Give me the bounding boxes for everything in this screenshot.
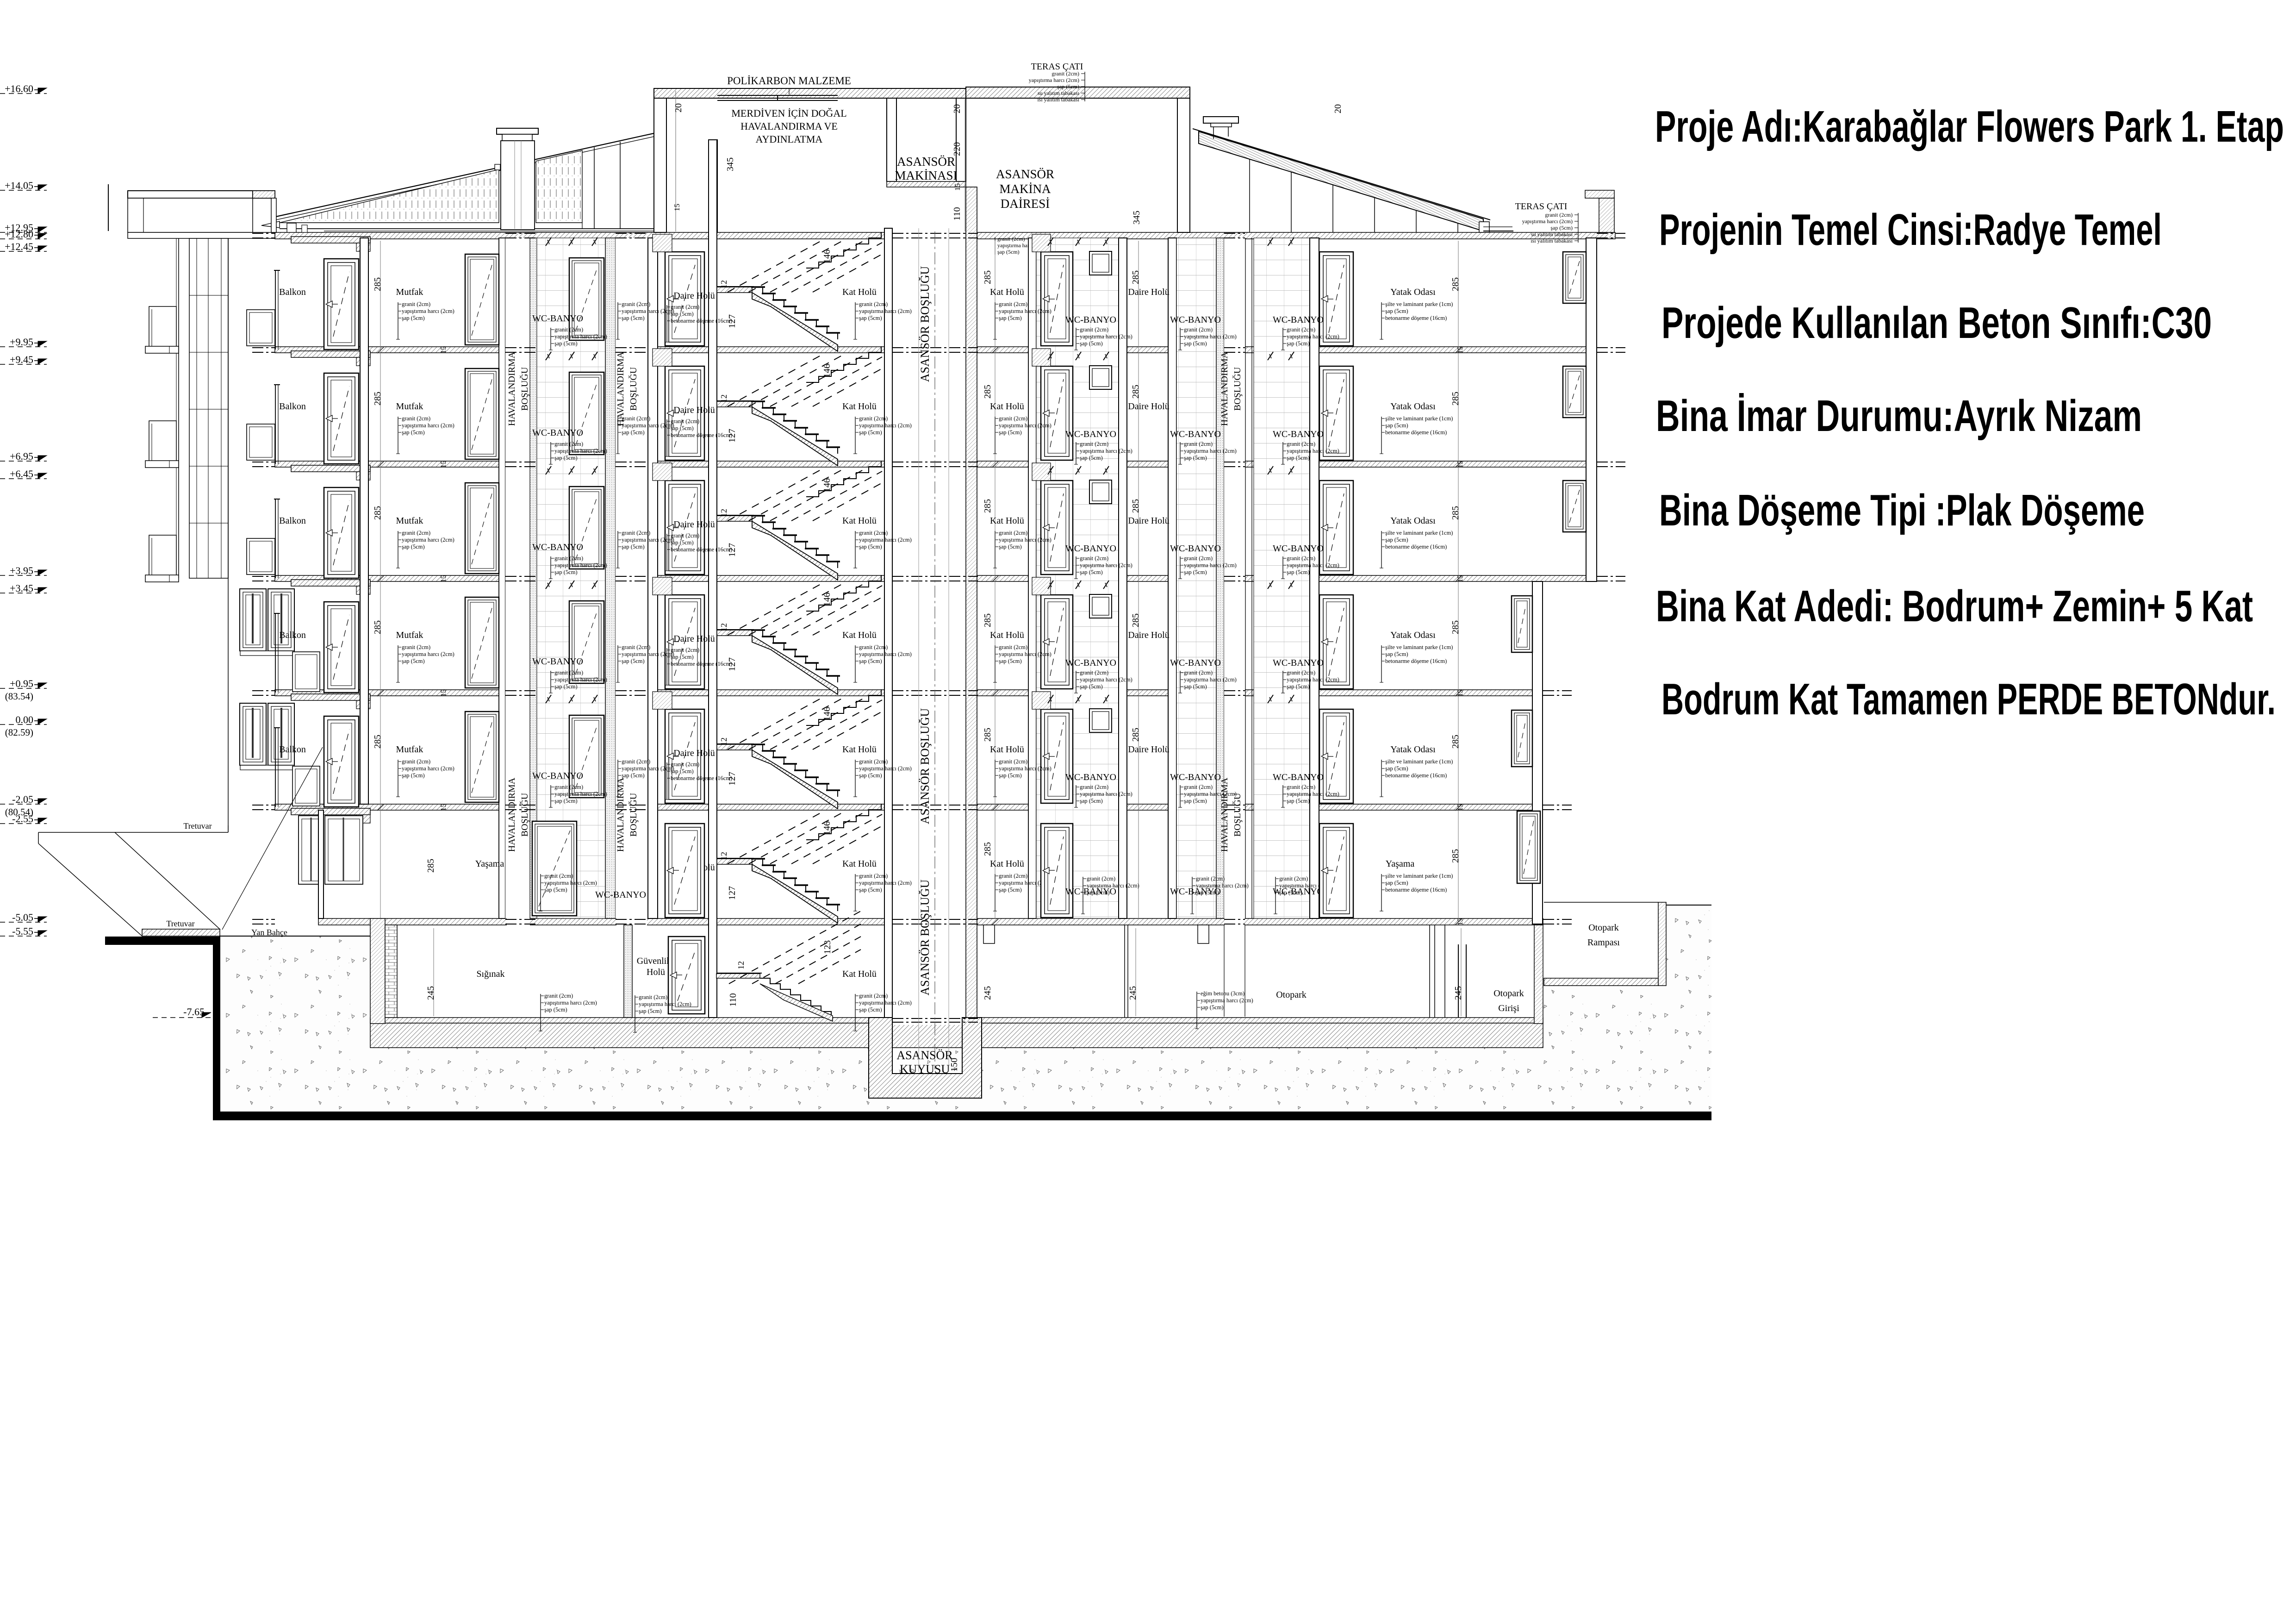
svg-text:Tretuvar: Tretuvar <box>183 821 212 831</box>
svg-text:şilte ve laminant parke (1cm): şilte ve laminant parke (1cm) <box>1385 644 1453 650</box>
svg-text:granit (2cm): granit (2cm) <box>1196 875 1225 882</box>
svg-text:285: 285 <box>983 499 993 513</box>
svg-text:su yalıtım tabakası: su yalıtım tabakası <box>1038 90 1080 96</box>
svg-text:şap (5cm): şap (5cm) <box>859 315 882 321</box>
svg-text:ASANSÖR: ASANSÖR <box>996 167 1054 181</box>
svg-text:granit (2cm): granit (2cm) <box>1052 70 1079 77</box>
svg-text:WC-BANYO: WC-BANYO <box>595 890 646 900</box>
svg-text:granit (2cm): granit (2cm) <box>1184 669 1213 676</box>
svg-text:granit (2cm): granit (2cm) <box>999 530 1027 536</box>
svg-text:yapıştırma harcı (2cm): yapıştırma harcı (2cm) <box>622 308 674 314</box>
svg-text:127: 127 <box>727 543 737 557</box>
svg-text:granit (2cm): granit (2cm) <box>859 993 888 999</box>
svg-text:granit (2cm): granit (2cm) <box>402 530 430 536</box>
svg-text:WC-BANYO: WC-BANYO <box>1170 772 1221 782</box>
svg-text:granit (2cm): granit (2cm) <box>1279 875 1308 882</box>
svg-text:Otopark: Otopark <box>1276 990 1307 1000</box>
svg-text:MERDİVEN İÇİN DOĞAL: MERDİVEN İÇİN DOĞAL <box>731 107 846 119</box>
svg-text:şap (5cm): şap (5cm) <box>622 543 645 550</box>
svg-text:BOŞLUĞU: BOŞLUĞU <box>519 793 530 837</box>
svg-text:şap (5cm): şap (5cm) <box>1184 340 1207 347</box>
svg-text:Otopark: Otopark <box>1493 988 1524 999</box>
svg-text:+9.45: +9.45 <box>10 354 33 365</box>
svg-text:285: 285 <box>373 506 383 520</box>
svg-text:granit (2cm): granit (2cm) <box>639 994 667 1000</box>
svg-text:Kat Holü: Kat Holü <box>990 401 1024 412</box>
svg-text:245: 245 <box>1128 986 1138 1000</box>
svg-text:betonarme döşeme (16cm): betonarme döşeme (16cm) <box>671 661 732 667</box>
svg-text:110: 110 <box>952 207 962 220</box>
svg-text:ASANSÖR BOŞLUĞU: ASANSÖR BOŞLUĞU <box>918 708 932 824</box>
svg-text:yapıştırma harcı (2cm): yapıştırma harcı (2cm) <box>622 765 674 772</box>
svg-text:Holü: Holü <box>647 967 665 977</box>
svg-text:şilte ve laminant parke (1cm): şilte ve laminant parke (1cm) <box>1385 758 1453 765</box>
svg-text:WC-BANYO: WC-BANYO <box>1170 315 1221 325</box>
svg-text:betonarme döşeme (16cm): betonarme döşeme (16cm) <box>1385 315 1447 321</box>
svg-text:0.00: 0.00 <box>16 714 34 725</box>
svg-text:220: 220 <box>952 142 962 156</box>
svg-text:yapıştırma harcı (2cm): yapıştırma harcı (2cm) <box>402 422 454 429</box>
svg-text:245: 245 <box>426 986 436 1000</box>
svg-text:yapıştırma harcı (2cm): yapıştırma harcı (2cm) <box>554 676 607 683</box>
svg-text:BOŞLUĞU: BOŞLUĞU <box>1232 367 1243 411</box>
svg-text:şap (5cm): şap (5cm) <box>402 658 425 664</box>
svg-text:şap (5cm): şap (5cm) <box>671 654 694 660</box>
svg-text:127: 127 <box>727 429 737 443</box>
svg-text:Proje Adı:Karabağlar Flowers P: Proje Adı:Karabağlar Flowers Park 1. Eta… <box>1655 102 2284 151</box>
svg-text:şap (5cm): şap (5cm) <box>859 543 882 550</box>
svg-text:şap (5cm): şap (5cm) <box>999 887 1022 893</box>
svg-text:Kat Holü: Kat Holü <box>842 287 877 297</box>
svg-text:granit (2cm): granit (2cm) <box>1080 555 1108 562</box>
svg-text:şap (5cm): şap (5cm) <box>671 311 694 317</box>
svg-text:Yatak Odası: Yatak Odası <box>1390 630 1436 640</box>
svg-text:Balkon: Balkon <box>279 401 306 412</box>
svg-text:Yaşama: Yaşama <box>475 859 504 869</box>
svg-text:Kat Holü: Kat Holü <box>842 516 877 526</box>
svg-text:yapıştırma harcı (2cm): yapıştırma harcı (2cm) <box>859 422 912 429</box>
svg-text:yapıştırma harcı (2cm): yapıştırma harcı (2cm) <box>999 308 1052 314</box>
svg-text:WC-BANYO: WC-BANYO <box>532 313 583 324</box>
svg-text:granit (2cm): granit (2cm) <box>1184 555 1213 562</box>
svg-text:granit (2cm): granit (2cm) <box>622 530 650 536</box>
svg-text:WC-BANYO: WC-BANYO <box>1065 429 1116 439</box>
svg-text:granit (2cm): granit (2cm) <box>671 304 699 310</box>
svg-text:yapıştırma harcı (2cm): yapıştırma harcı (2cm) <box>859 651 912 657</box>
svg-text:15: 15 <box>1456 804 1464 811</box>
svg-text:285: 285 <box>373 735 383 749</box>
svg-text:granit (2cm): granit (2cm) <box>859 644 888 650</box>
svg-text:285: 285 <box>373 392 383 406</box>
svg-text:şap (5cm): şap (5cm) <box>1080 683 1103 690</box>
svg-text:+12.45: +12.45 <box>5 241 33 252</box>
svg-text:şilte ve laminant parke (1cm): şilte ve laminant parke (1cm) <box>1385 301 1453 307</box>
svg-text:Daire Holü: Daire Holü <box>1128 744 1169 755</box>
svg-text:285: 285 <box>1450 620 1461 634</box>
svg-text:granit (2cm): granit (2cm) <box>671 647 699 653</box>
svg-text:granit (2cm): granit (2cm) <box>554 441 583 447</box>
svg-text:Yatak Odası: Yatak Odası <box>1390 401 1436 412</box>
svg-text:-7.65: -7.65 <box>183 1006 205 1018</box>
svg-text:yapıştırma harcı (2cm): yapıştırma harcı (2cm) <box>554 448 607 454</box>
svg-text:15: 15 <box>1456 575 1464 582</box>
svg-text:şap (5cm): şap (5cm) <box>999 543 1022 550</box>
svg-text:Yan Bahçe: Yan Bahçe <box>251 928 287 937</box>
svg-text:285: 285 <box>983 842 993 856</box>
svg-text:şap (5cm): şap (5cm) <box>999 772 1022 779</box>
svg-text:Otopark: Otopark <box>1588 923 1619 933</box>
svg-text:granit (2cm): granit (2cm) <box>1287 441 1315 447</box>
svg-text:127: 127 <box>727 657 737 671</box>
svg-text:betonarme döşeme (16cm): betonarme döşeme (16cm) <box>671 318 732 324</box>
svg-text:şap (5cm): şap (5cm) <box>1385 651 1408 657</box>
svg-text:şap (5cm): şap (5cm) <box>859 658 882 664</box>
svg-text:15: 15 <box>1456 918 1464 925</box>
svg-text:127: 127 <box>727 772 737 786</box>
svg-text:şap (5cm): şap (5cm) <box>859 887 882 893</box>
svg-text:şap (5cm): şap (5cm) <box>639 1008 662 1014</box>
svg-text:granit (2cm): granit (2cm) <box>622 758 650 765</box>
svg-text:yapıştırma harcı (2cm): yapıştırma harcı (2cm) <box>554 562 607 568</box>
svg-text:granit (2cm): granit (2cm) <box>859 530 888 536</box>
svg-text:granit (2cm): granit (2cm) <box>1080 441 1108 447</box>
svg-text:granit (2cm): granit (2cm) <box>1184 784 1213 790</box>
svg-text:granit (2cm): granit (2cm) <box>999 873 1027 879</box>
svg-text:şap (5cm): şap (5cm) <box>554 798 578 804</box>
svg-text:şap (5cm): şap (5cm) <box>544 887 567 893</box>
svg-text:Kat Holü: Kat Holü <box>842 859 877 869</box>
svg-text:285: 285 <box>983 613 993 627</box>
svg-text:150: 150 <box>949 1058 959 1072</box>
svg-text:şap (5cm): şap (5cm) <box>671 768 694 775</box>
svg-text:Tretuvar: Tretuvar <box>166 919 194 928</box>
svg-text:WC-BANYO: WC-BANYO <box>1273 315 1324 325</box>
svg-text:şap (5cm): şap (5cm) <box>859 1006 882 1013</box>
svg-text:285: 285 <box>983 270 993 284</box>
svg-text:betonarme döşeme (16cm): betonarme döşeme (16cm) <box>1385 887 1447 893</box>
svg-text:WC-BANYO: WC-BANYO <box>1273 429 1324 439</box>
svg-text:+9.95: +9.95 <box>10 336 33 348</box>
svg-text:ASANSÖR BOŞLUĞU: ASANSÖR BOŞLUĞU <box>918 266 932 382</box>
svg-text:şap (5cm): şap (5cm) <box>544 1006 567 1013</box>
svg-text:HAVALANDIRMA VE: HAVALANDIRMA VE <box>740 120 838 132</box>
svg-text:Kat Holü: Kat Holü <box>990 744 1024 755</box>
svg-text:yapıştırma harcı (2cm): yapıştırma harcı (2cm) <box>1080 448 1132 454</box>
svg-text:285: 285 <box>373 620 383 634</box>
svg-text:Balkon: Balkon <box>279 516 306 526</box>
svg-text:su yalıtım tabakası: su yalıtım tabakası <box>1531 231 1573 237</box>
svg-text:eğim betonu (3cm): eğim betonu (3cm) <box>1201 990 1244 997</box>
svg-text:yapıştırma harcı (2cm): yapıştırma harcı (2cm) <box>1087 882 1139 889</box>
svg-text:yapıştırma harcı (2cm): yapıştırma harcı (2cm) <box>1287 791 1339 797</box>
svg-text:şap (5cm): şap (5cm) <box>859 772 882 779</box>
svg-text:Yatak Odası: Yatak Odası <box>1390 287 1436 297</box>
svg-text:şap (5cm): şap (5cm) <box>1287 798 1310 804</box>
svg-text:Mutfak: Mutfak <box>396 516 423 526</box>
svg-text:Daire Holü: Daire Holü <box>673 634 715 644</box>
svg-text:345: 345 <box>1132 211 1142 225</box>
svg-text:yapıştırma harcı (2cm): yapıştırma harcı (2cm) <box>554 333 607 340</box>
svg-text:245: 245 <box>983 986 993 1000</box>
svg-text:granit (2cm): granit (2cm) <box>1184 441 1213 447</box>
svg-text:yapıştırma harcı (2cm): yapıştırma harcı (2cm) <box>544 880 597 886</box>
svg-text:+12.80: +12.80 <box>5 228 33 240</box>
svg-text:Mutfak: Mutfak <box>396 630 423 640</box>
svg-text:yapıştırma harcı (2cm): yapıştırma harcı (2cm) <box>1080 676 1132 683</box>
svg-text:15: 15 <box>1456 346 1464 354</box>
svg-text:granit (2cm): granit (2cm) <box>1287 555 1315 562</box>
svg-text:şap (5cm): şap (5cm) <box>1201 1004 1224 1011</box>
svg-text:şap (5cm): şap (5cm) <box>1184 569 1207 575</box>
svg-text:12: 12 <box>719 737 728 746</box>
svg-text:Yatak Odası: Yatak Odası <box>1390 744 1436 755</box>
svg-text:127: 127 <box>727 314 737 328</box>
svg-text:+6.45: +6.45 <box>10 468 33 480</box>
svg-text:granit (2cm): granit (2cm) <box>997 236 1025 242</box>
svg-text:granit (2cm): granit (2cm) <box>999 758 1027 765</box>
svg-text:yapıştırma harcı (2cm): yapıştırma harcı (2cm) <box>1287 333 1339 340</box>
svg-text:BOŞLUĞU: BOŞLUĞU <box>1232 793 1243 837</box>
svg-text:yapıştırma harcı (2cm): yapıştırma harcı (2cm) <box>622 422 674 429</box>
svg-text:15: 15 <box>440 461 448 468</box>
svg-text:şap (5cm): şap (5cm) <box>1196 889 1219 896</box>
svg-text:+6.95: +6.95 <box>10 450 33 462</box>
svg-text:Mutfak: Mutfak <box>396 744 423 755</box>
svg-text:12: 12 <box>719 852 728 860</box>
svg-text:285: 285 <box>1131 499 1141 513</box>
svg-text:betonarme döşeme (16cm): betonarme döşeme (16cm) <box>1385 543 1447 550</box>
svg-text:granit (2cm): granit (2cm) <box>1080 669 1108 676</box>
svg-text:15: 15 <box>440 346 448 354</box>
svg-text:20: 20 <box>952 104 962 113</box>
svg-text:granit (2cm): granit (2cm) <box>402 758 430 765</box>
svg-text:Projede Kullanılan Beton Sınıf: Projede Kullanılan Beton Sınıfı:C30 <box>1661 298 2212 348</box>
svg-text:HAVALANDIRMA: HAVALANDIRMA <box>1220 351 1230 426</box>
svg-text:285: 285 <box>373 277 383 291</box>
svg-text:şap (5cm): şap (5cm) <box>1080 455 1103 461</box>
svg-text:+16.60: +16.60 <box>5 83 33 94</box>
svg-text:Daire Holü: Daire Holü <box>1128 287 1169 297</box>
svg-text:Bodrum Kat Tamamen PERDE BETON: Bodrum Kat Tamamen PERDE BETONdur. <box>1661 675 2276 724</box>
svg-text:HAVALANDIRMA: HAVALANDIRMA <box>616 351 626 426</box>
svg-text:Daire Holü: Daire Holü <box>673 748 715 758</box>
svg-text:15: 15 <box>440 575 448 582</box>
svg-text:-2.05: -2.05 <box>12 793 33 805</box>
svg-text:285: 285 <box>1450 506 1461 520</box>
svg-text:şap (5cm): şap (5cm) <box>1080 798 1103 804</box>
svg-text:Balkon: Balkon <box>279 744 306 755</box>
svg-text:granit (2cm): granit (2cm) <box>402 644 430 650</box>
svg-text:şap (5cm): şap (5cm) <box>1550 225 1573 231</box>
svg-text:şap (5cm): şap (5cm) <box>1287 340 1310 347</box>
svg-text:granit (2cm): granit (2cm) <box>999 415 1027 422</box>
svg-text:şap (5cm): şap (5cm) <box>999 429 1022 436</box>
svg-text:şap (5cm): şap (5cm) <box>622 658 645 664</box>
svg-text:HAVALANDIRMA: HAVALANDIRMA <box>1220 777 1230 852</box>
svg-text:yapıştırma harcı (2cm): yapıştırma harcı (2cm) <box>1184 448 1237 454</box>
svg-text:granit (2cm): granit (2cm) <box>859 301 888 307</box>
svg-text:285: 285 <box>1450 735 1461 749</box>
svg-text:12: 12 <box>719 394 728 403</box>
svg-text:+0.95: +0.95 <box>10 678 33 689</box>
svg-text:Projenin Temel Cinsi:Radye Tem: Projenin Temel Cinsi:Radye Temel <box>1659 205 2162 255</box>
svg-text:betonarme döşeme (16cm): betonarme döşeme (16cm) <box>671 432 732 438</box>
svg-text:WC-BANYO: WC-BANYO <box>532 771 583 781</box>
svg-text:Daire Holü: Daire Holü <box>673 519 715 530</box>
svg-text:15: 15 <box>1456 689 1464 697</box>
svg-text:ASANSÖR BOŞLUĞU: ASANSÖR BOŞLUĞU <box>918 879 932 995</box>
svg-text:Kat Holü: Kat Holü <box>990 516 1024 526</box>
svg-text:12: 12 <box>719 280 728 288</box>
svg-text:granit (2cm): granit (2cm) <box>1287 326 1315 333</box>
svg-text:Daire Holü: Daire Holü <box>1128 630 1169 640</box>
svg-text:-5.05: -5.05 <box>12 912 33 923</box>
svg-text:245: 245 <box>1453 986 1463 1000</box>
svg-text:MAKİNA: MAKİNA <box>1000 182 1051 196</box>
svg-text:granit (2cm): granit (2cm) <box>1184 326 1213 333</box>
svg-text:ASANSÖR: ASANSÖR <box>896 1049 953 1062</box>
svg-text:şap (5cm): şap (5cm) <box>1385 308 1408 314</box>
svg-text:yapıştırma harcı (2cm): yapıştırma harcı (2cm) <box>1184 562 1237 568</box>
svg-text:(83.54): (83.54) <box>5 691 33 702</box>
svg-text:şap (5cm): şap (5cm) <box>554 569 578 575</box>
svg-text:granit (2cm): granit (2cm) <box>1080 784 1108 790</box>
svg-text:Girişi: Girişi <box>1498 1003 1519 1013</box>
svg-text:WC-BANYO: WC-BANYO <box>1065 772 1116 782</box>
svg-text:granit (2cm): granit (2cm) <box>554 326 583 333</box>
svg-text:şap (5cm): şap (5cm) <box>1385 880 1408 886</box>
svg-text:yapıştırma harcı (2cm): yapıştırma harcı (2cm) <box>402 537 454 543</box>
svg-text:yapıştırma harcı (2cm): yapıştırma harcı (2cm) <box>544 999 597 1006</box>
svg-text:şap (5cm): şap (5cm) <box>1184 455 1207 461</box>
svg-text:285: 285 <box>983 728 993 742</box>
svg-text:Kat Holü: Kat Holü <box>842 744 877 755</box>
svg-text:285: 285 <box>1450 392 1461 406</box>
svg-text:yapıştırma harcı (2cm): yapıştırma harcı (2cm) <box>639 1001 691 1007</box>
svg-text:Kat Holü: Kat Holü <box>842 969 877 979</box>
svg-text:yapıştırma harcı (2cm): yapıştırma harcı (2cm) <box>1184 333 1237 340</box>
svg-text:Mutfak: Mutfak <box>396 401 423 412</box>
svg-text:+3.95: +3.95 <box>10 565 33 576</box>
svg-text:BOŞLUĞU: BOŞLUĞU <box>628 793 639 837</box>
svg-text:15: 15 <box>673 204 681 211</box>
svg-text:Bina Kat Adedi: Bodrum+ Zemin+: Bina Kat Adedi: Bodrum+ Zemin+ 5 Kat <box>1656 581 2253 631</box>
svg-text:yapıştırma harcı (2cm): yapıştırma harcı (2cm) <box>999 537 1052 543</box>
svg-text:şap (5cm): şap (5cm) <box>1080 340 1103 347</box>
svg-text:KUYUSU: KUYUSU <box>900 1062 950 1076</box>
svg-text:yapıştırma harcı (2cm): yapıştırma harcı (2cm) <box>999 422 1052 429</box>
svg-text:HAVALANDIRMA: HAVALANDIRMA <box>616 777 626 852</box>
svg-text:15: 15 <box>440 804 448 811</box>
svg-text:şap (5cm): şap (5cm) <box>402 772 425 779</box>
svg-text:ASANSÖR: ASANSÖR <box>897 155 955 169</box>
svg-text:Daire Holü: Daire Holü <box>1128 401 1169 412</box>
svg-text:Daire Holü: Daire Holü <box>1128 516 1169 526</box>
svg-text:şap (5cm): şap (5cm) <box>1385 765 1408 772</box>
svg-text:şap (5cm): şap (5cm) <box>1087 889 1110 896</box>
svg-text:yapıştırma harcı (2cm): yapıştırma harcı (2cm) <box>1080 791 1132 797</box>
svg-text:granit (2cm): granit (2cm) <box>859 758 888 765</box>
svg-text:yapıştırma harcı (2cm): yapıştırma harcı (2cm) <box>1522 218 1573 225</box>
svg-text:AYDINLATMA: AYDINLATMA <box>756 133 823 145</box>
svg-text:granit (2cm): granit (2cm) <box>402 301 430 307</box>
svg-text:DAİRESİ: DAİRESİ <box>1001 197 1050 211</box>
svg-text:şap (5cm): şap (5cm) <box>671 425 694 431</box>
svg-text:BOŞLUĞU: BOŞLUĞU <box>628 367 639 411</box>
svg-text:HAVALANDIRMA: HAVALANDIRMA <box>507 777 517 852</box>
svg-text:Balkon: Balkon <box>279 287 306 297</box>
svg-text:betonarme döşeme (16cm): betonarme döşeme (16cm) <box>1385 772 1447 779</box>
svg-text:WC-BANYO: WC-BANYO <box>1273 543 1324 554</box>
svg-text:Kat Holü: Kat Holü <box>990 630 1024 640</box>
svg-text:granit (2cm): granit (2cm) <box>999 301 1027 307</box>
svg-text:yapıştırma harcı (2cm): yapıştırma harcı (2cm) <box>1184 676 1237 683</box>
svg-text:Bina Döşeme Tipi :Plak Döşeme: Bina Döşeme Tipi :Plak Döşeme <box>1659 486 2145 535</box>
svg-text:şap (5cm): şap (5cm) <box>1385 537 1408 543</box>
svg-text:şap (5cm): şap (5cm) <box>999 315 1022 321</box>
svg-text:betonarme döşeme (16cm): betonarme döşeme (16cm) <box>671 775 732 781</box>
svg-text:yapıştırma harcı (2cm): yapıştırma harcı (2cm) <box>1029 77 1079 83</box>
svg-text:yapıştırma harcı (2cm): yapıştırma harcı (2cm) <box>1287 448 1339 454</box>
svg-text:12: 12 <box>719 623 728 631</box>
svg-text:granit (2cm): granit (2cm) <box>1087 875 1115 882</box>
svg-text:yapıştırma harcı (2cm): yapıştırma harcı (2cm) <box>622 537 674 543</box>
svg-text:şap (5cm): şap (5cm) <box>1287 683 1310 690</box>
svg-text:285: 285 <box>1450 277 1461 291</box>
svg-text:Balkon: Balkon <box>279 630 306 640</box>
svg-text:granit (2cm): granit (2cm) <box>999 644 1027 650</box>
svg-text:granit (2cm): granit (2cm) <box>622 301 650 307</box>
svg-text:+3.45: +3.45 <box>10 582 33 594</box>
svg-text:granit (2cm): granit (2cm) <box>671 761 699 768</box>
svg-text:granit (2cm): granit (2cm) <box>1287 784 1315 790</box>
svg-text:şap (5cm): şap (5cm) <box>1287 569 1310 575</box>
svg-text:şap (5cm): şap (5cm) <box>1080 569 1103 575</box>
svg-text:Yatak Odası: Yatak Odası <box>1390 516 1436 526</box>
svg-text:Güvenlik: Güvenlik <box>637 956 671 966</box>
svg-text:granit (2cm): granit (2cm) <box>859 873 888 879</box>
svg-text:285: 285 <box>1131 728 1141 742</box>
svg-text:yapıştırma harcı (2cm): yapıştırma harcı (2cm) <box>859 999 912 1006</box>
svg-text:285: 285 <box>1131 270 1141 284</box>
svg-text:MAKİNASI: MAKİNASI <box>895 169 958 182</box>
svg-text:146: 146 <box>822 707 832 721</box>
svg-text:WC-BANYO: WC-BANYO <box>1170 429 1221 439</box>
svg-text:şap (5cm): şap (5cm) <box>554 683 578 690</box>
svg-text:yapıştırma harcı (2cm): yapıştırma harcı (2cm) <box>859 537 912 543</box>
svg-text:granit (2cm): granit (2cm) <box>1545 212 1573 218</box>
svg-text:Kat Holü: Kat Holü <box>990 287 1024 297</box>
svg-text:şap (5cm): şap (5cm) <box>859 429 882 436</box>
svg-text:285: 285 <box>1131 613 1141 627</box>
svg-text:yapıştırma harcı (2cm): yapıştırma harcı (2cm) <box>554 791 607 797</box>
svg-text:Daire Holü: Daire Holü <box>673 291 715 301</box>
svg-text:granit (2cm): granit (2cm) <box>554 669 583 676</box>
svg-text:şilte ve laminant parke (1cm): şilte ve laminant parke (1cm) <box>1385 415 1453 422</box>
svg-text:Sığınak: Sığınak <box>476 969 504 979</box>
svg-text:yapıştırma harcı (2cm): yapıştırma harcı (2cm) <box>859 765 912 772</box>
svg-text:123: 123 <box>822 940 833 954</box>
svg-text:şap (5cm): şap (5cm) <box>1184 798 1207 804</box>
svg-text:WC-BANYO: WC-BANYO <box>1170 543 1221 554</box>
svg-text:granit (2cm): granit (2cm) <box>622 644 650 650</box>
svg-text:yapıştırma harcı (2cm): yapıştırma harcı (2cm) <box>1196 882 1249 889</box>
svg-text:20: 20 <box>673 103 684 112</box>
svg-text:285: 285 <box>1450 849 1461 863</box>
svg-text:yapıştırma harcı (2cm): yapıştırma harcı (2cm) <box>622 651 674 657</box>
svg-text:146: 146 <box>822 821 832 835</box>
svg-text:betonarme döşeme (16cm): betonarme döşeme (16cm) <box>1385 429 1447 436</box>
